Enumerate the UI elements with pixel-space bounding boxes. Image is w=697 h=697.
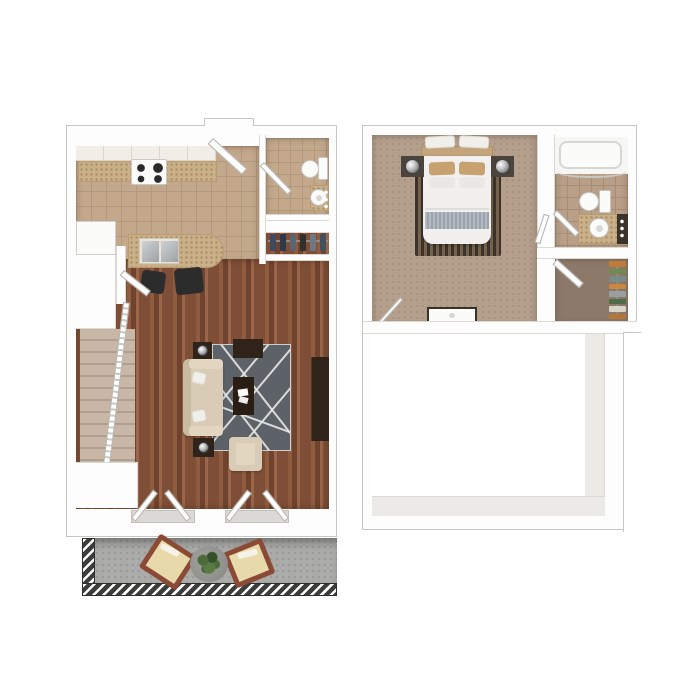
nightstand: [401, 156, 424, 177]
bedroom-bottom-wall: [363, 321, 637, 334]
sink-basin-left: [142, 241, 159, 262]
sink-basin-right: [161, 241, 178, 262]
floor-plan-scene: [0, 0, 697, 697]
accent-pillow: [425, 135, 456, 149]
toilet-bowl: [301, 160, 319, 178]
bed-pillow-tan: [459, 162, 485, 176]
duvet-fold: [425, 208, 489, 210]
bath-closet-wall: [537, 247, 628, 259]
end-table: [193, 438, 214, 457]
bed-pillow-tan: [429, 162, 455, 176]
bed-blanket-band: [425, 212, 489, 229]
tv-bench: [233, 339, 263, 358]
chair-towel: [160, 543, 181, 557]
bed-pillow-white: [459, 177, 485, 188]
floorplan-second-floor: [362, 125, 637, 530]
nightstand-lamp: [405, 159, 420, 174]
sink-drain: [596, 225, 603, 232]
entry-recess: [204, 118, 254, 126]
planter: [190, 546, 228, 582]
armchair: [229, 437, 262, 471]
hanging-coats: [270, 234, 328, 251]
sofa-arm: [189, 426, 223, 436]
wall-step-cutout: [623, 332, 641, 532]
range-stove: [131, 159, 167, 185]
throw-pillow: [191, 409, 207, 423]
bed: [423, 156, 491, 244]
accent-pillow: [459, 135, 490, 149]
hanging-clothes: [609, 261, 626, 319]
stair-landing: [76, 462, 138, 508]
plant: [194, 549, 224, 577]
sink-drain: [316, 195, 322, 201]
vanity-mirror: [617, 214, 628, 244]
sofa-back: [183, 359, 191, 436]
island-double-sink: [139, 238, 179, 264]
sofa-arm: [189, 359, 223, 369]
coffee-table: [233, 377, 254, 415]
end-table: [193, 342, 212, 359]
bar-stool: [174, 267, 205, 296]
nightstand-lamp: [495, 159, 510, 174]
dresser-detail: [449, 313, 455, 318]
armchair-cushion: [236, 443, 255, 465]
vanity-lights: [324, 189, 328, 211]
shower-curtain-rod: [555, 164, 628, 178]
chair-towel: [237, 549, 258, 560]
closet-bottom-wall: [266, 254, 329, 261]
mirror-lights: [620, 218, 624, 240]
media-console: [311, 357, 329, 441]
nightstand: [491, 156, 514, 177]
bed-pillow-white: [429, 177, 455, 188]
closet-shelf: [266, 221, 329, 233]
balcony: [82, 538, 337, 596]
refrigerator: [76, 221, 116, 255]
void-wall-face-bottom: [372, 496, 605, 516]
table-lamp: [198, 442, 209, 453]
throw-pillow: [191, 371, 207, 386]
floorplan-first-floor: [66, 125, 337, 537]
bathroom-wall: [259, 135, 266, 264]
toilet-tank: [599, 190, 611, 213]
open-to-below: [372, 334, 585, 496]
sofa: [183, 359, 223, 436]
magazine: [238, 396, 248, 404]
toilet-tank: [318, 157, 328, 180]
closet-wall: [266, 214, 329, 221]
balcony-railing-front: [82, 583, 337, 596]
table-lamp: [197, 345, 208, 356]
void-wall-face-right: [585, 334, 605, 504]
toilet-bowl: [579, 192, 599, 211]
vanity-sink: [589, 218, 609, 238]
